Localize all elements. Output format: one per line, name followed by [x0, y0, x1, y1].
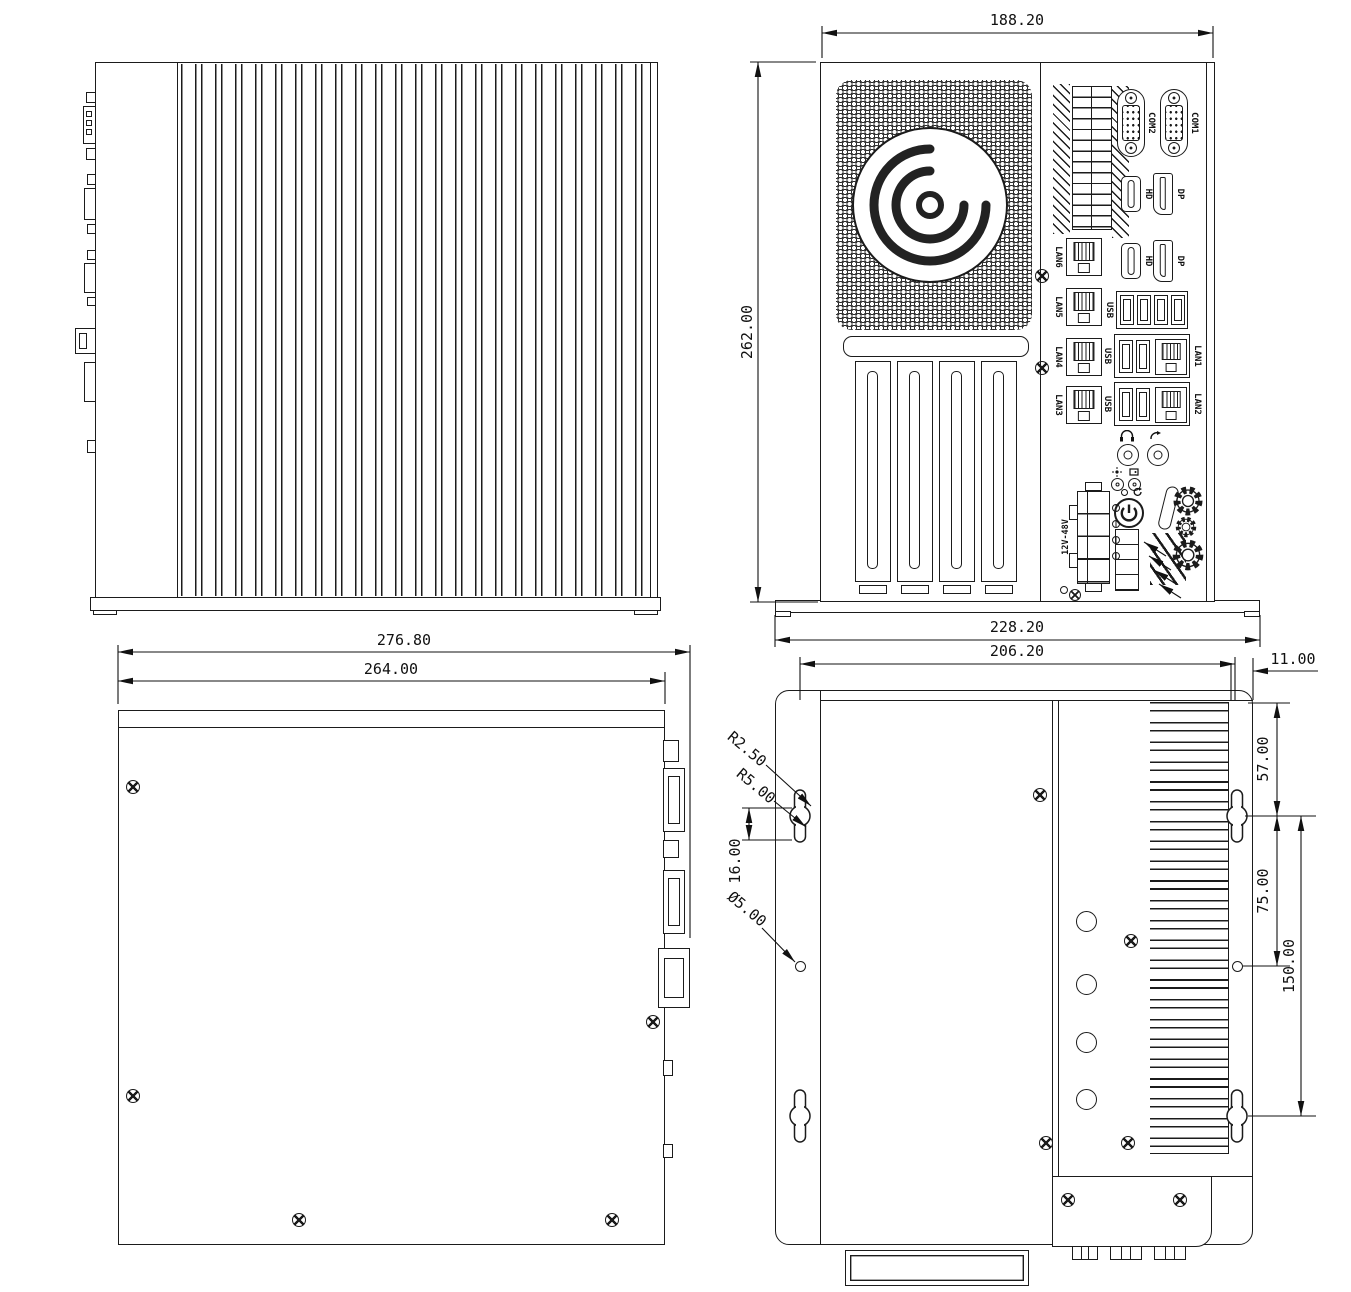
usb-combo-label: USB: [1102, 348, 1112, 364]
side-base-foot-right: [634, 610, 658, 615]
vent-slot: [985, 585, 1013, 594]
side-connector-pin: [86, 120, 92, 126]
power-terminal-block: [1077, 491, 1110, 584]
mount-top-inner-line: [820, 700, 1253, 701]
dim-mount-width: 206.20: [990, 642, 1044, 660]
dim-rear-width: 188.20: [990, 11, 1044, 29]
mount-heatsink-edge-a: [1052, 700, 1053, 1178]
headphone-jack: [1117, 444, 1139, 466]
antenna-hole: [1076, 1032, 1097, 1053]
edge-connector-profile: [663, 1060, 673, 1076]
power-led-icon: [1112, 467, 1122, 477]
power-terminal-ear-bottom: [1085, 583, 1102, 592]
lan6-label: LAN6: [1053, 246, 1063, 268]
cover-screw: [292, 1213, 306, 1227]
mount-bottom-bar: [845, 1250, 1029, 1286]
mount-fin-bottom-line: [1150, 1153, 1229, 1154]
lan3-label: LAN3: [1053, 394, 1063, 416]
side-connector-bump: [87, 224, 96, 234]
lan2-label: LAN2: [1192, 393, 1202, 415]
lan5-label: LAN5: [1053, 296, 1063, 318]
edge-connector-inner: [668, 878, 680, 926]
lan4-port: [1066, 338, 1102, 376]
cover-screw: [126, 1089, 140, 1103]
lan4-label: LAN4: [1053, 346, 1063, 368]
dim-bottom-outer-width: 276.80: [377, 631, 431, 649]
bottom-connector-stub: [1110, 1246, 1142, 1260]
side-connector-pin: [86, 111, 92, 117]
rear-foot-left: [775, 611, 791, 617]
mount-heatsink-fins: [1150, 702, 1228, 1154]
thumbscrew-gear-icon: [1171, 484, 1205, 518]
thumbscrew-gear-icon: [1170, 537, 1206, 573]
dp-label: DP: [1175, 256, 1185, 267]
line-out-jack: [1147, 444, 1169, 466]
expansion-slot-opening: [993, 371, 1004, 569]
displayport-port: [1153, 173, 1173, 215]
displayport-port: [1153, 240, 1173, 282]
terminal-screw: [1112, 504, 1120, 512]
side-connector-pin: [86, 129, 92, 135]
expansion-slot-opening: [951, 371, 962, 569]
side-connector-block: [84, 188, 96, 220]
com1-label: COM1: [1189, 112, 1199, 134]
rear-foot-right: [1244, 611, 1260, 617]
mounting-hole: [795, 961, 806, 972]
lan5-port: [1066, 288, 1102, 326]
usb-quad-label: USB: [1104, 302, 1114, 318]
hdmi-label: HD: [1143, 189, 1153, 200]
vent-slot: [943, 585, 971, 594]
antenna-hole: [1076, 911, 1097, 932]
com2-label: COM2: [1146, 112, 1156, 134]
line-out-icon: [1149, 430, 1163, 442]
edge-connector-profile: [663, 740, 679, 762]
dim-hole-span: 150.00: [1280, 939, 1298, 993]
dim-keyhole-radius-small: R2.50: [724, 728, 770, 771]
bottom-connector-stub: [1154, 1246, 1186, 1260]
dim-hole-diameter: Ø5.00: [724, 888, 770, 931]
dim-keyhole-top-offset: 57.00: [1254, 736, 1272, 781]
side-connector-bump: [87, 297, 96, 306]
side-connector-bump: [87, 440, 96, 453]
side-connector-bump: [86, 148, 96, 160]
side-connector-block: [84, 263, 96, 293]
lan6-port: [1066, 238, 1102, 276]
usb-quad-stack: [1116, 291, 1188, 329]
expansion-slot-opening: [909, 371, 920, 569]
com1-port: [1160, 89, 1188, 157]
keyhole-slot: [1219, 788, 1255, 844]
dim-keyhole-radius-large: R5.00: [733, 765, 779, 808]
usb-combo-label: USB: [1102, 396, 1112, 412]
dim-fin-depth: 11.00: [1270, 650, 1315, 668]
terminal-screw: [1112, 520, 1120, 528]
cover-screw: [605, 1213, 619, 1227]
edge-tab-inner: [664, 958, 684, 998]
lan3-port: [1066, 386, 1102, 424]
rear-panel-divider: [1040, 63, 1041, 601]
dio-pin-labels-hatch: [1053, 84, 1070, 234]
mounting-hole: [1232, 961, 1243, 972]
side-panel-divider: [177, 63, 178, 597]
antenna-hole: [1076, 974, 1097, 995]
side-mount-tab-slot: [79, 333, 87, 349]
mount-screw: [1033, 788, 1047, 802]
dim-rear-full-width: 228.20: [990, 618, 1044, 636]
side-connector-bump: [86, 92, 96, 103]
panel-screw: [1035, 269, 1049, 283]
bottom-connector-stub: [1072, 1246, 1098, 1260]
dio-terminal-block: [1072, 86, 1112, 230]
hdmi-port: [1121, 243, 1141, 279]
dim-keyhole-slot-length: 16.00: [726, 838, 744, 883]
bottom-cover-body: [118, 710, 665, 1245]
power-terminal-tab: [1069, 505, 1078, 520]
power-input-label: 12V-48V: [1061, 519, 1071, 555]
keyhole-slot: [1219, 1088, 1255, 1144]
antenna-hole: [1076, 1089, 1097, 1110]
cover-screw: [126, 780, 140, 794]
edge-connector-profile: [663, 1144, 673, 1158]
usb-lan2-combo: [1114, 382, 1190, 426]
vent-slot: [901, 585, 929, 594]
mount-screw: [1173, 1193, 1187, 1207]
mount-body-left-edge: [820, 691, 821, 1244]
side-base-plate: [90, 597, 661, 611]
side-connector-block: [84, 362, 96, 402]
hdmi-label: HD: [1143, 256, 1153, 267]
edge-connector-profile: [663, 840, 679, 858]
soft-off-icon: [1121, 489, 1128, 496]
dp-label: DP: [1175, 189, 1185, 200]
mount-screw: [1039, 1136, 1053, 1150]
cover-screw: [646, 1015, 660, 1029]
side-connector-bump: [87, 174, 96, 185]
com2-port: [1117, 89, 1145, 157]
side-right-edge-line: [650, 63, 651, 597]
usb-lan1-combo: [1114, 334, 1190, 378]
antenna-hole: [1060, 586, 1068, 594]
dim-hole-spacing: 75.00: [1254, 868, 1272, 913]
remote-switch-connector: [1115, 529, 1139, 591]
mount-bottom-block: [1052, 1176, 1212, 1247]
headphone-icon: [1119, 430, 1135, 442]
mechanical-drawing-canvas: COM2 COM1 HD DP HD DP LAN6 LAN5 LAN4 LAN…: [0, 0, 1351, 1292]
panel-screw: [1069, 589, 1081, 601]
panel-screw: [1035, 361, 1049, 375]
mount-screw: [1061, 1193, 1075, 1207]
lan1-label: LAN1: [1192, 345, 1202, 367]
keyhole-slot: [782, 788, 818, 844]
rear-right-inner-line: [1206, 63, 1207, 601]
keyhole-slot: [782, 1088, 818, 1144]
power-terminal-tab: [1069, 553, 1078, 568]
hdmi-port: [1121, 176, 1141, 212]
slot-retainer-bar: [843, 336, 1029, 357]
side-connector-bump: [87, 250, 96, 260]
side-heatsink-fins: [181, 64, 648, 596]
dim-bottom-inner-width: 264.00: [364, 660, 418, 678]
mount-fin-spine: [1228, 702, 1229, 1154]
vent-slot: [859, 585, 887, 594]
fan-swirl-icon: [852, 127, 1008, 283]
mount-screw: [1121, 1136, 1135, 1150]
hdd-led-icon: [1129, 467, 1139, 477]
edge-connector-inner: [668, 776, 680, 824]
power-terminal-ear-top: [1085, 482, 1102, 491]
reset-icon: [1133, 487, 1143, 497]
expansion-slot-opening: [867, 371, 878, 569]
mount-screw: [1124, 934, 1138, 948]
dim-rear-height: 262.00: [738, 305, 756, 359]
side-base-foot-left: [93, 610, 117, 615]
bottom-cover-edge-line: [119, 727, 664, 728]
mount-heatsink-edge-b: [1058, 700, 1059, 1178]
thumbscrew-gear-icon: [1174, 515, 1198, 539]
